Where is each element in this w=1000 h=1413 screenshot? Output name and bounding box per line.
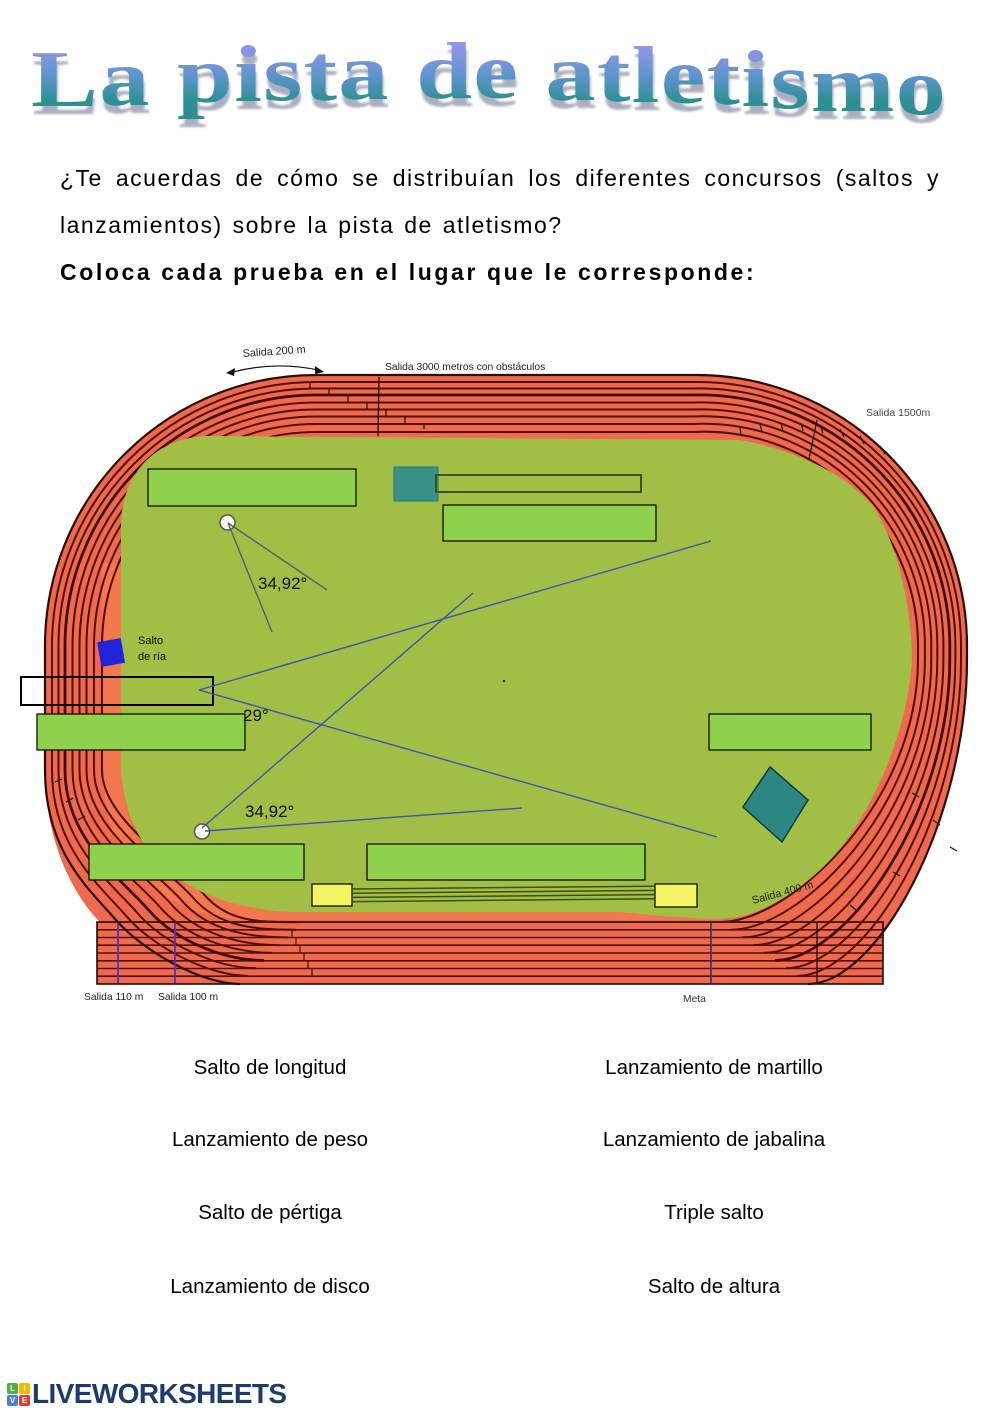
svg-text:Salida 110 m: Salida 110 m	[84, 992, 143, 1003]
svg-text:Salida 3000 metros con obstácu: Salida 3000 metros con obstáculos	[385, 362, 545, 373]
svg-text:Salida 1500m: Salida 1500m	[866, 407, 930, 419]
svg-text:Meta: Meta	[683, 994, 706, 1005]
svg-text:34,92°: 34,92°	[245, 802, 294, 821]
svg-text:34,92°: 34,92°	[258, 574, 307, 593]
svg-text:29°: 29°	[243, 706, 269, 725]
svg-text:Salida 200 m: Salida 200 m	[242, 344, 306, 360]
svg-text:de ría: de ría	[138, 651, 167, 663]
svg-text:Salto: Salto	[138, 635, 163, 647]
svg-text:Salida 100 m: Salida 100 m	[158, 992, 218, 1003]
